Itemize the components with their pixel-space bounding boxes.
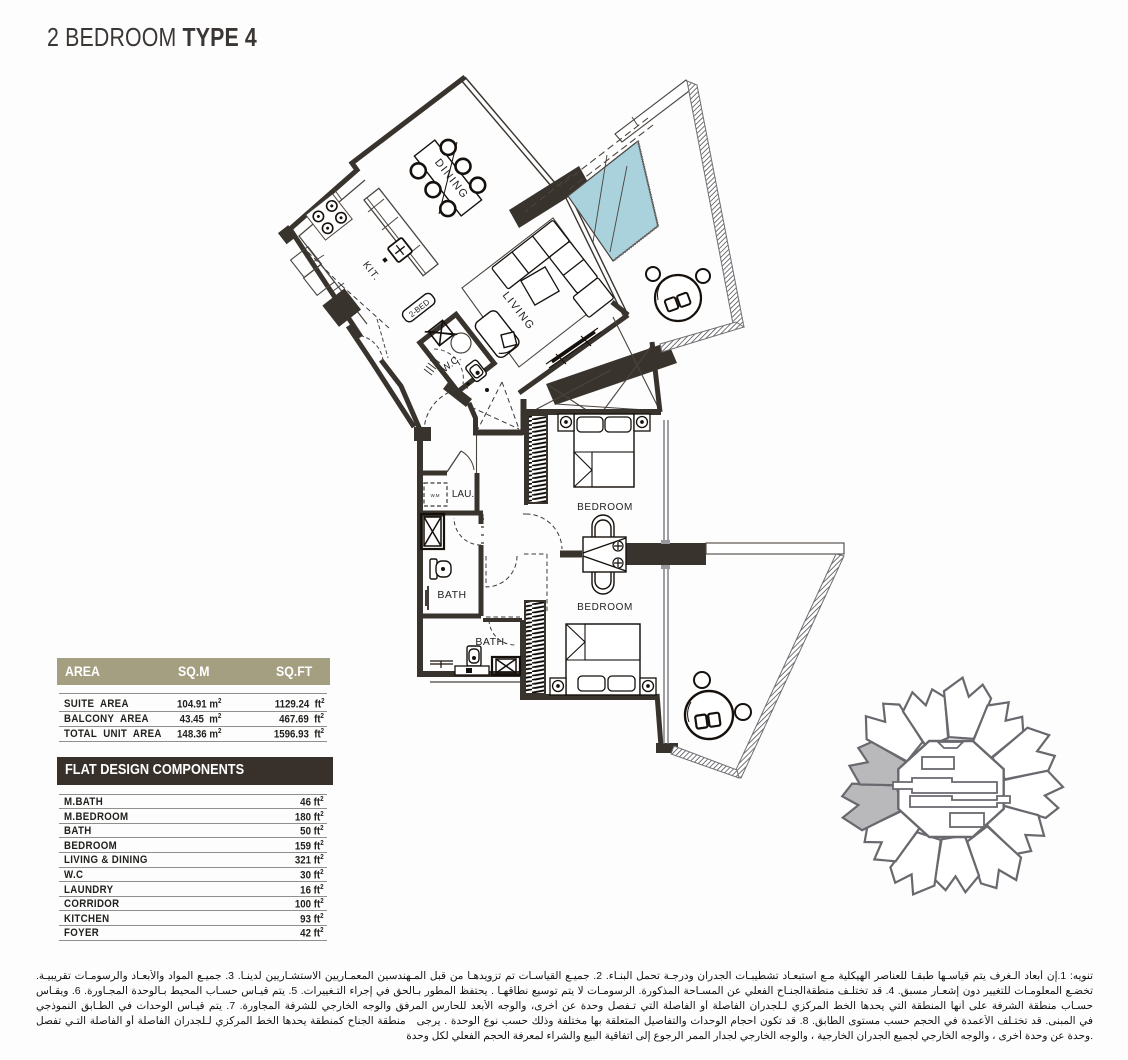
svg-text:BATH: BATH bbox=[437, 589, 466, 601]
svg-text:BEDROOM: BEDROOM bbox=[577, 602, 633, 613]
svg-text:LAU.: LAU. bbox=[452, 489, 474, 500]
svg-text:BATH: BATH bbox=[475, 636, 504, 648]
svg-text:KIT.: KIT. bbox=[360, 260, 382, 284]
svg-text:W.M: W.M bbox=[431, 493, 440, 498]
svg-text:BEDROOM: BEDROOM bbox=[577, 502, 633, 513]
